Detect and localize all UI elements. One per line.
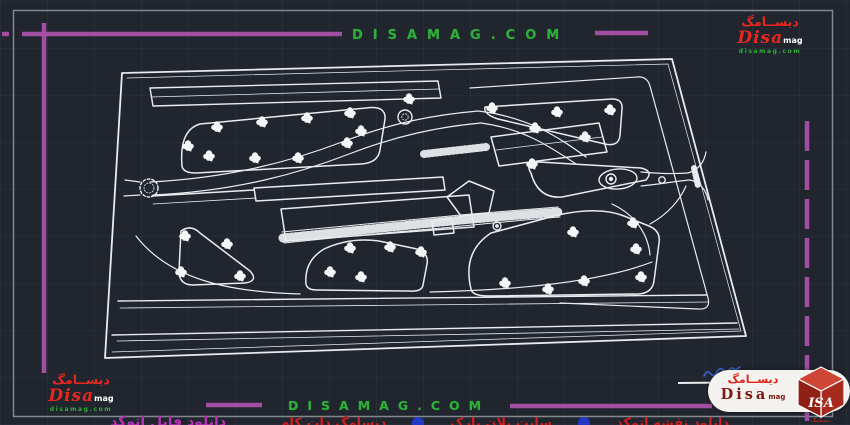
- clipped-caption-red: دانلود نقشه اتوکد سایت پلان پارک دیسامگ …: [280, 416, 825, 425]
- logo-name: Disamag: [42, 388, 120, 405]
- watermark-top: DISAMAG.COM: [352, 28, 569, 43]
- top-parking-strip: [150, 81, 441, 106]
- hatched-walkway: [282, 147, 560, 243]
- roads: [124, 111, 708, 294]
- disamag-logo-top-right: دیســامگ Disamag disamag.com: [731, 16, 809, 55]
- planting-beds: [179, 99, 659, 296]
- cad-canvas: DISAMAG.COM DISAMAG.COM دیســامگ Disamag…: [0, 0, 850, 425]
- blue-dot-icon: [578, 417, 590, 425]
- clipped-caption-magenta: دانلود فایل اتوکد: [98, 414, 226, 425]
- disamag-logo-bottom-left: دیســامگ Disamag disamag.com: [42, 374, 120, 413]
- outer-boundary: [105, 59, 746, 358]
- roundabout-circle: [140, 179, 158, 197]
- sheet-border: [14, 11, 833, 417]
- logo-site-url: disamag.com: [731, 49, 809, 55]
- logo-suffix: mag: [783, 36, 802, 45]
- logo-suffix: mag: [94, 394, 113, 403]
- badge-persian-text: دیســامگ: [708, 374, 798, 385]
- logo-site-url: disamag.com: [42, 407, 120, 413]
- svg-text:ISA: ISA: [807, 396, 834, 411]
- badge-suffix: mag: [768, 393, 785, 401]
- ring-road: [470, 77, 709, 309]
- badge-name: Disamag: [708, 388, 798, 403]
- site-drawing: [105, 59, 746, 358]
- blue-dot-icon: [412, 417, 424, 425]
- logo-name: Disamag: [731, 30, 809, 47]
- watermark-bottom: DISAMAG.COM: [288, 398, 490, 413]
- isa-cube-logo: ISA دیسامگ: [792, 362, 850, 424]
